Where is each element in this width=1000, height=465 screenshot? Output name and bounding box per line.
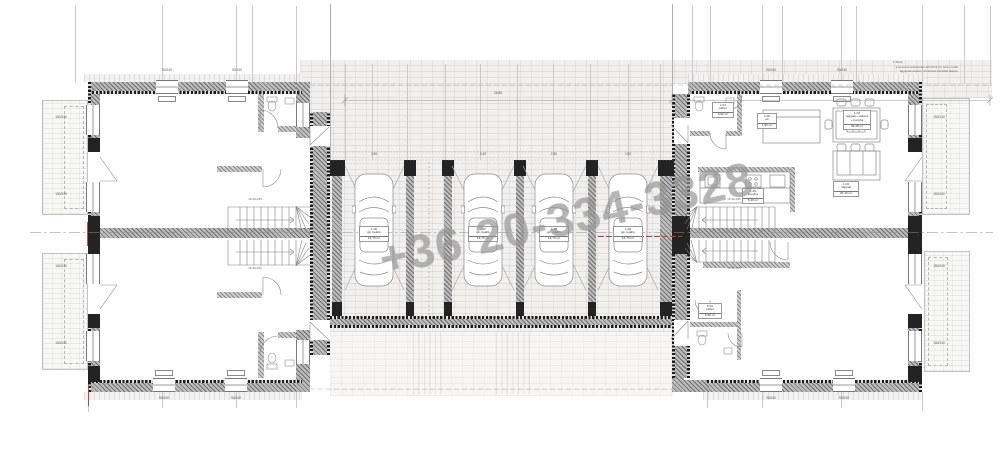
wall-insulation-block [404, 160, 416, 176]
guide-line [922, 392, 923, 410]
garage-bay-label: 1.08gk. beálló16,73 m² [539, 226, 569, 242]
guide-line [628, 64, 629, 160]
room-area: 3,92 m² [713, 112, 733, 117]
room-name: gk. beálló [540, 231, 568, 235]
window-dim: 150/240 [928, 265, 950, 269]
annotation-note: a tervezett térburkolat 10×20×6 cm beton… [810, 66, 958, 73]
room-area: 1,50 m² [758, 123, 776, 128]
paving-band [84, 74, 302, 82]
room-name: gk. beálló [614, 231, 642, 235]
room-label-nappali: 1.04nappali20,10 m² [833, 181, 859, 197]
paving-area [922, 84, 992, 98]
wall-insulation-block [658, 160, 674, 176]
window-dim: 150/240 [50, 342, 72, 346]
partition-wall [258, 94, 264, 132]
room-area: 16,73 m² [614, 236, 642, 241]
window [760, 80, 782, 94]
wall-insulation-block [908, 314, 922, 328]
window-dim: 150/240 [928, 193, 950, 197]
wall-insulation-block [88, 138, 100, 152]
partition-wall [790, 167, 795, 212]
window-dim: 150/240 [50, 193, 72, 197]
paving-area [300, 84, 673, 332]
door-opening [310, 126, 330, 146]
room-label-hall2: 0.01előtér3,90 m² [698, 303, 722, 319]
room-name: nappali [834, 186, 858, 190]
wall-insulation-block [516, 302, 524, 316]
wall-insulation-block [586, 160, 598, 176]
wall-insulation-block [908, 366, 922, 382]
window [156, 80, 178, 94]
guide-line [445, 64, 446, 160]
partition-wall [690, 131, 710, 136]
bay-dim: 2,50 [363, 153, 385, 157]
terrace-inner-dashed [64, 259, 84, 364]
window-dim: 150/240 [928, 116, 950, 120]
wall-insulation [692, 91, 918, 94]
paving-band [703, 392, 922, 400]
guide-line [330, 4, 331, 162]
terrace [42, 253, 88, 370]
walkway-strip [413, 332, 445, 394]
guide-line [710, 6, 711, 82]
room-area: 16,73 m² [469, 236, 497, 241]
window [296, 340, 310, 364]
guide-line [296, 392, 297, 408]
room-name: gk. beálló [360, 231, 388, 235]
guide-line [480, 64, 481, 160]
wall-insulation [707, 380, 922, 383]
annotation-line: ágyazóhomokon, tömörített zúzottkő alapo… [900, 69, 958, 73]
window [86, 331, 100, 361]
wall-insulation-block [88, 216, 100, 254]
window [908, 254, 922, 284]
wall [660, 176, 672, 316]
room-name: előtér [713, 107, 733, 111]
wall [690, 228, 908, 238]
guide-line [75, 6, 76, 82]
radiator [835, 370, 853, 376]
wall-insulation-block [444, 302, 452, 316]
window [225, 378, 247, 392]
floor-plan-canvas: 1.06gk. beálló16,73 m² 1.07gk. beálló16,… [0, 0, 1000, 465]
wall-insulation [327, 112, 330, 355]
bay-dim: 2,50 [472, 153, 494, 157]
guide-line [88, 392, 89, 412]
guide-line [296, 6, 297, 82]
window [86, 182, 100, 212]
paving-band [84, 392, 302, 400]
bay-dim: 2,50 [543, 153, 565, 157]
partition-wall [217, 292, 262, 298]
guide-line [707, 392, 708, 408]
room-label-wc: 1.02wc1,50 m² [757, 113, 777, 129]
wall [100, 228, 312, 238]
room-label-living: 1.03nappali + étkező+ konyha34,40 m² [843, 110, 871, 130]
wall-insulation-block [88, 366, 100, 382]
wall-insulation [330, 316, 673, 319]
room-area: 34,40 m² [844, 124, 870, 129]
room-name: wc [758, 118, 776, 122]
window-dim: 90/240 [225, 397, 247, 401]
partition-wall [217, 166, 262, 172]
room-area: 20,10 m² [834, 191, 858, 196]
wall [332, 176, 342, 316]
wall-insulation-block [908, 216, 922, 254]
wall-insulation-block [672, 216, 690, 254]
stair-note: 13×18,4/25 [712, 199, 756, 202]
window [86, 254, 100, 284]
guide-line [782, 6, 783, 82]
wall [672, 380, 709, 392]
guide-line [345, 64, 346, 160]
radiator [762, 370, 780, 376]
radiator [155, 370, 173, 376]
door-opening [908, 152, 922, 182]
partition-wall [258, 332, 264, 378]
wall-insulation [92, 91, 302, 94]
room-area: 16,73 m² [540, 236, 568, 241]
window-dim: 90/240 [156, 69, 178, 73]
wall-insulation [310, 112, 313, 355]
window [908, 105, 922, 135]
guide-line [964, 6, 965, 84]
wall-insulation-block [442, 160, 454, 176]
stair-note: 13×18,4/25 [712, 268, 756, 271]
window-dim: 90/240 [833, 397, 855, 401]
partition-wall [726, 131, 742, 136]
wall-insulation-block [514, 160, 526, 176]
partition-wall [278, 332, 296, 338]
window-dim: 90/240 [153, 397, 175, 401]
partition-wall [698, 167, 795, 172]
partition-wall [737, 290, 741, 360]
wall-insulation-block [660, 302, 672, 316]
garage-bay-label: 1.09gk. beálló16,73 m² [613, 226, 643, 242]
window [831, 80, 853, 94]
radiator [833, 96, 851, 102]
stair-note: 13×18,4/25 [233, 199, 277, 202]
door-opening [674, 320, 690, 346]
wall-insulation-block [332, 302, 342, 316]
wall [444, 176, 452, 316]
guide-line [553, 64, 554, 160]
walkway-strip [496, 332, 530, 394]
wall [406, 176, 414, 316]
door-opening [310, 320, 330, 340]
window [226, 80, 248, 94]
door-opening [908, 284, 922, 314]
wall-insulation [330, 325, 673, 328]
window [296, 103, 310, 127]
guide-line [372, 64, 373, 160]
window-dim: 90/240 [760, 69, 782, 73]
paving-band [688, 74, 922, 82]
stair-note: 13×18,4/25 [233, 268, 277, 271]
window [908, 331, 922, 361]
room-name: előtér [699, 308, 721, 312]
radiator [762, 96, 780, 102]
wall-insulation-block [88, 314, 100, 328]
window [908, 182, 922, 212]
window-dim: 150/240 [928, 342, 950, 346]
door-opening [88, 284, 100, 314]
wall-insulation-block [330, 160, 345, 176]
window [153, 378, 175, 392]
window [86, 105, 100, 135]
guide-line [407, 64, 408, 160]
wall [516, 176, 524, 316]
door-opening [674, 118, 690, 144]
terrace-inner-dashed [928, 257, 948, 366]
radiator [158, 96, 176, 102]
room-area: 16,73 m² [360, 236, 388, 241]
wall-insulation-block [588, 302, 596, 316]
room-area: 3,90 m² [699, 313, 721, 318]
terrace [924, 251, 970, 372]
room-name: + konyha [844, 119, 870, 123]
guide-line [692, 6, 693, 82]
guide-line [660, 64, 661, 160]
bay-dim: 2,50 [617, 153, 639, 157]
garage-bay-label: 1.06gk. beálló16,73 m² [359, 226, 389, 242]
window [833, 378, 855, 392]
guide-line [252, 6, 253, 82]
wall-insulation-block [406, 302, 414, 316]
room-name: gk. beálló [469, 231, 497, 235]
window-dim: 150/240 [50, 265, 72, 269]
partition-wall [278, 126, 296, 132]
wall [588, 176, 596, 316]
radiator [227, 370, 245, 376]
wall-insulation-block [908, 138, 922, 152]
garage-bay-label: 1.07gk. beálló16,73 m² [468, 226, 498, 242]
wall-insulation [92, 380, 302, 383]
total-dim: 26,85 [483, 92, 513, 96]
window [760, 378, 782, 392]
window-dim: 90/240 [226, 69, 248, 73]
room-label-hall: 1.01előtér3,92 m² [712, 102, 734, 118]
partition-wall [690, 322, 737, 327]
window-dim: 90/240 [760, 397, 782, 401]
guide-line [990, 6, 991, 84]
partition-wall [737, 94, 742, 136]
guide-line [590, 64, 591, 160]
radiator [228, 96, 246, 102]
window-dim: 150/240 [50, 116, 72, 120]
room-name: konyha [743, 193, 763, 197]
door-opening [88, 152, 100, 182]
guide-line [517, 64, 518, 160]
